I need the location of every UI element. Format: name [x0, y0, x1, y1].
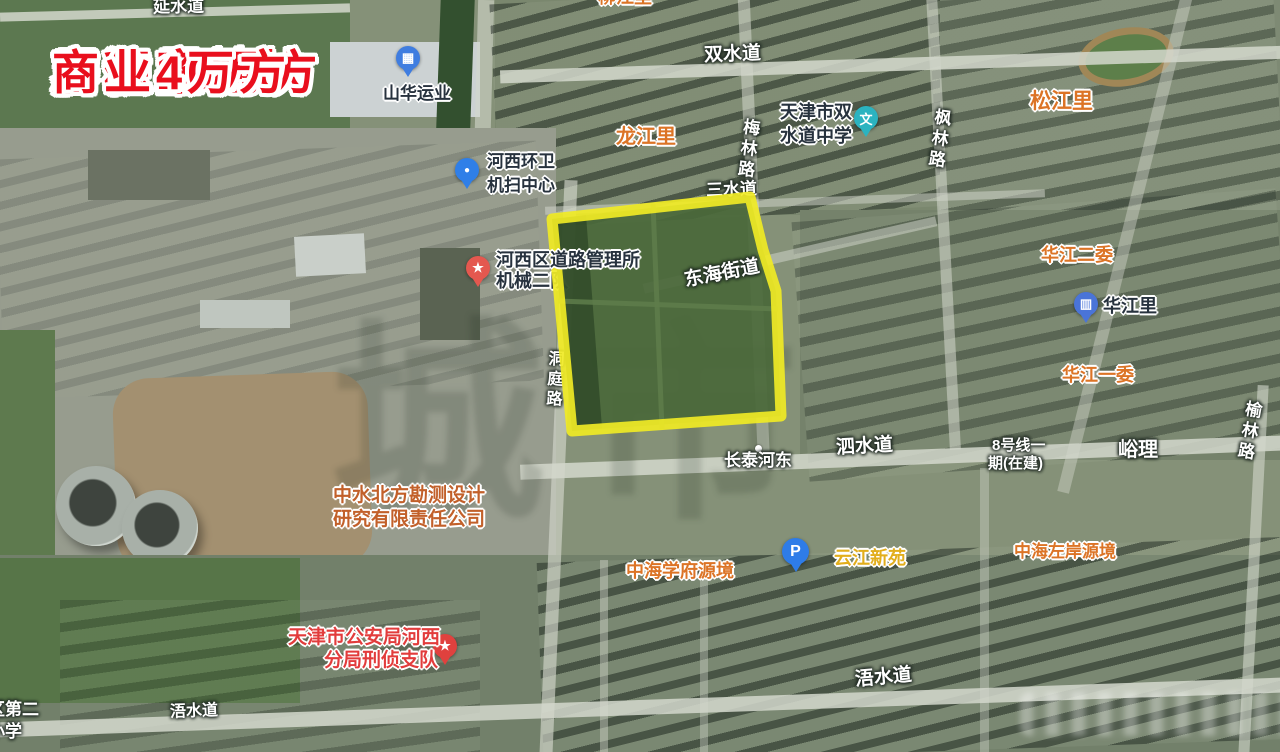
dot-icon: ● [464, 165, 470, 176]
area-label-longjiangli: 龙江里 [616, 126, 676, 149]
poi-pin-daolu[interactable]: ★ [466, 256, 490, 280]
area-label-clipped-top: 柳江里 [598, 0, 652, 8]
road-label-sishuidao: 泗水道 [835, 435, 893, 460]
poi-label-school-clipped-1: 区第二 [0, 700, 39, 720]
poi-label-police-1: 天津市公安局河西 [288, 627, 440, 649]
poi-pin-huajiangli[interactable]: ▥ [1074, 292, 1098, 316]
area-label-huajiang-yiwei: 华江一委 [1062, 365, 1134, 386]
poi-label-school-1: 天津市双 [780, 102, 852, 123]
badge-icon: ★ [439, 638, 451, 654]
poi-label-police-2: 分局刑侦支队 [324, 650, 438, 672]
poi-label-school-2: 水道中学 [780, 126, 852, 147]
metro-line8-label-1: 8号线一 [992, 437, 1045, 454]
poi-label-zhongshui-1: 中水北方勘测设计 [333, 485, 485, 507]
building-icon: ▦ [402, 50, 414, 66]
area-label-yuli: 峪理 [1118, 439, 1158, 462]
poi-label-huanwei-2: 机扫中心 [487, 176, 555, 196]
school-icon: 文 [859, 109, 872, 128]
poi-label-daolu-1: 河西区道路管理所 [496, 250, 640, 271]
poi-pin-shanhua[interactable]: ▦ [396, 46, 420, 70]
star-icon: ★ [472, 260, 484, 276]
road-label-wushuidao-west: 浯水道 [170, 702, 219, 722]
annotation-line-4: 商业4万方 [52, 42, 291, 103]
area-label-zhonghai-zuoan: 中海左岸源境 [1014, 542, 1116, 562]
area-label-huajiang-erwei: 华江二委 [1041, 245, 1113, 266]
poi-pin-parking[interactable]: P [782, 538, 809, 565]
area-label-songjiangli: 松江里 [1030, 90, 1093, 114]
poi-label-zhongshui-2: 研究有限责任公司 [333, 509, 485, 531]
community-icon: ▥ [1080, 296, 1092, 312]
area-label-yunjiang-xinyuan: 云江新苑 [834, 548, 906, 569]
poi-label-huajiangli: 华江里 [1103, 296, 1157, 317]
poi-pin-school[interactable]: 文 [854, 106, 878, 130]
area-label-changtai-hedong: 长泰河东 [724, 451, 792, 471]
satellite-map[interactable]: 城市 洞庭路 三水道 机械二队 ▦ ● ★ 文 ▥ P ★ 山华运业 河西环卫 … [0, 0, 1280, 752]
poi-label-school-clipped-2: 小学 [0, 722, 22, 742]
poi-label-huanwei-1: 河西环卫 [487, 152, 555, 172]
area-label-zhonghai-xuefu: 中海学府源境 [626, 561, 734, 582]
parking-icon: P [790, 543, 801, 561]
road-label-yanshuidao: 延水道 [153, 0, 204, 17]
poi-pin-huanwei[interactable]: ● [455, 158, 479, 182]
poi-label-shanhua: 山华运业 [383, 84, 451, 104]
road-label-shuangshuidao: 双水道 [704, 43, 762, 67]
metro-line8-label-2: 期(在建) [988, 455, 1043, 472]
